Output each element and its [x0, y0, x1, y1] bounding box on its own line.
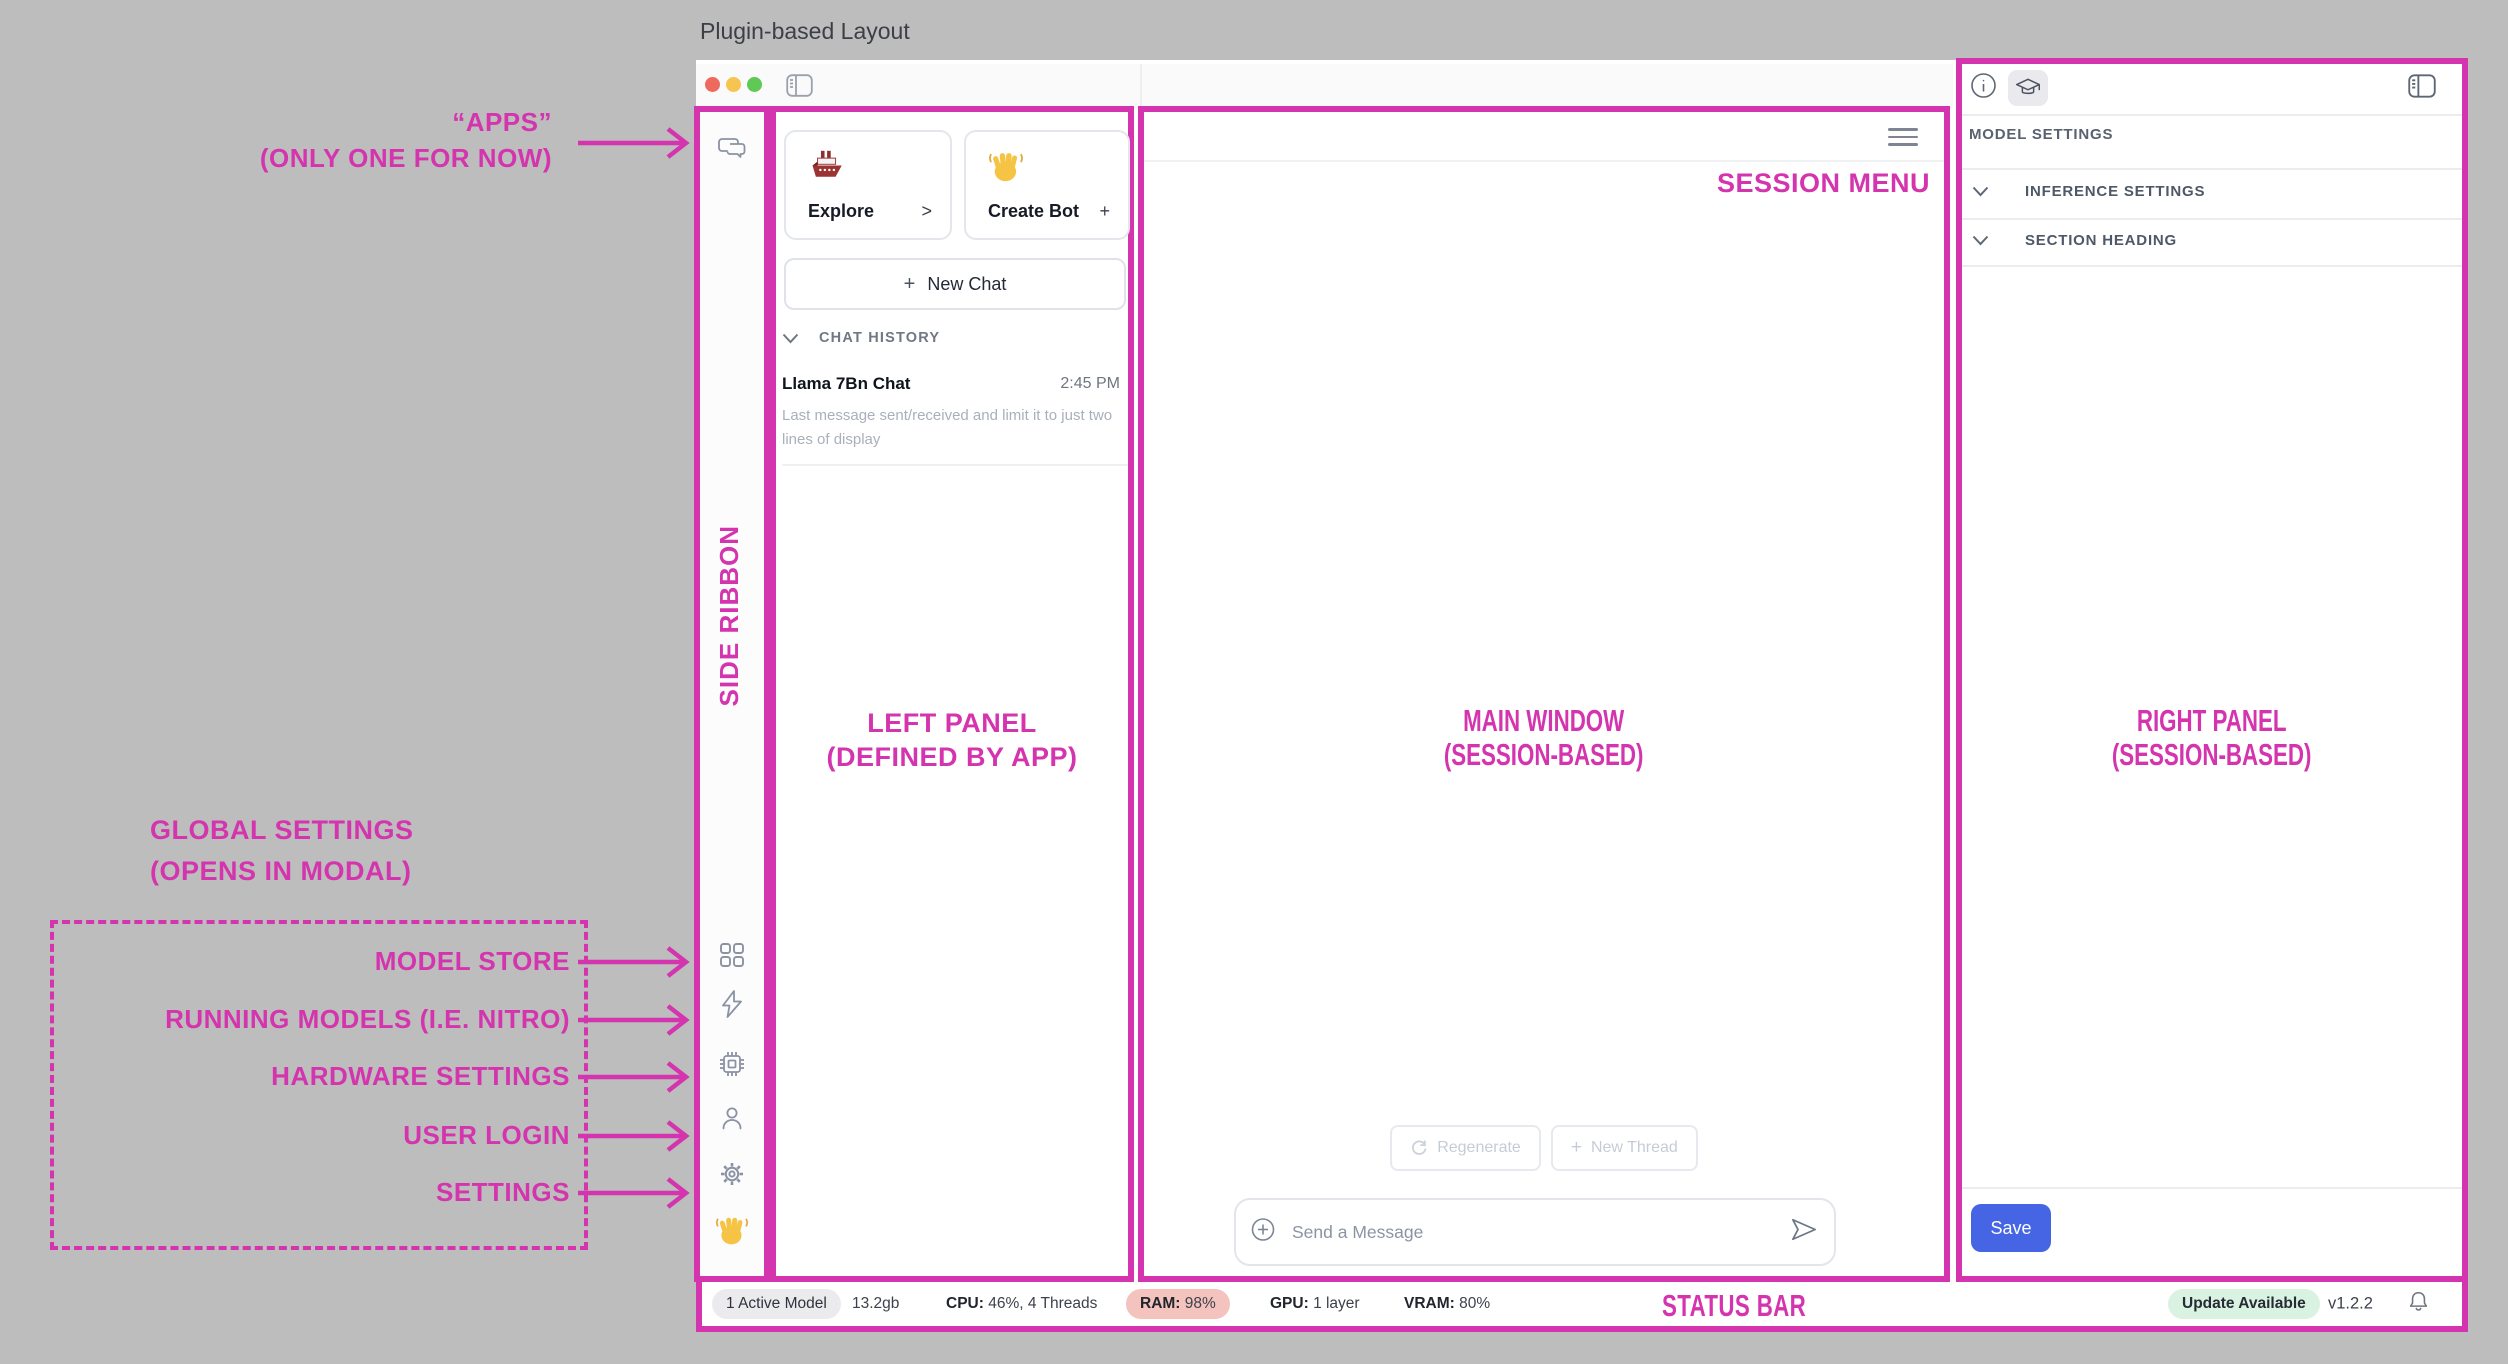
- session-menu-icon[interactable]: [1888, 128, 1918, 146]
- hardware-settings-icon[interactable]: [714, 1046, 750, 1082]
- chat-app-icon[interactable]: [714, 130, 750, 166]
- chevron-down-icon: [1972, 235, 1989, 246]
- left-panel-annotation: LEFT PANEL (DEFINED BY APP): [770, 706, 1134, 774]
- notification-bell-icon[interactable]: [2408, 1290, 2429, 1319]
- create-bot-card[interactable]: Create Bot +: [964, 130, 1130, 240]
- status-bar-annotation: STATUS BAR: [1662, 1288, 1806, 1324]
- plus-icon: +: [904, 273, 916, 296]
- model-settings-tab-active[interactable]: [2008, 70, 2048, 106]
- page-title: Plugin-based Layout: [700, 18, 910, 45]
- regenerate-button[interactable]: Regenerate: [1390, 1125, 1541, 1171]
- global-settings-annotation: GLOBAL SETTINGS (OPENS IN MODAL): [150, 810, 414, 892]
- chat-item-preview: Last message sent/received and limit it …: [782, 404, 1127, 452]
- status-bar: 1 Active Model 13.2gb CPU: 46%, 4 Thread…: [696, 1282, 2468, 1332]
- vram-stat: VRAM: 80%: [1404, 1295, 1490, 1313]
- divider: [1962, 1187, 2462, 1189]
- new-thread-button[interactable]: + New Thread: [1551, 1125, 1698, 1171]
- model-store-icon[interactable]: [714, 937, 750, 973]
- create-bot-card-label: Create Bot: [988, 201, 1079, 222]
- update-available-badge[interactable]: Update Available: [2168, 1289, 2320, 1319]
- model-store-arrow: [576, 944, 692, 980]
- apps-annotation: “APPS” (ONLY ONE FOR NOW): [260, 104, 552, 176]
- wave-emoji-icon: [988, 148, 1024, 189]
- divider: [1962, 168, 2462, 170]
- explore-card-label: Explore: [808, 201, 874, 222]
- window-titlebar: [696, 64, 1953, 108]
- traffic-light-minimize[interactable]: [726, 77, 741, 92]
- new-chat-label: New Chat: [927, 274, 1006, 295]
- left-panel: Explore > Create Bot: [770, 106, 1134, 1282]
- traffic-light-zoom[interactable]: [747, 77, 762, 92]
- attach-plus-icon[interactable]: [1250, 1217, 1276, 1248]
- send-icon[interactable]: [1790, 1217, 1818, 1248]
- message-input[interactable]: [1292, 1200, 1732, 1264]
- ram-stat-badge: RAM: 98%: [1126, 1289, 1230, 1319]
- regenerate-label: Regenerate: [1437, 1139, 1521, 1157]
- explore-card[interactable]: Explore >: [784, 130, 952, 240]
- right-panel: MODEL SETTINGS INFERENCE SETTINGS SECTIO…: [1956, 58, 2468, 1282]
- chevron-down-icon: [782, 333, 799, 344]
- model-store-annotation: MODEL STORE: [375, 946, 570, 977]
- right-panel-annotation: RIGHT PANEL(SESSION-BASED): [1956, 704, 2468, 773]
- running-models-annotation: RUNNING MODELS (I.E. NITRO): [165, 1004, 570, 1035]
- main-window-annotation: MAIN WINDOW(SESSION-BASED): [1138, 704, 1950, 773]
- running-models-icon[interactable]: [714, 986, 750, 1022]
- plus-icon: +: [1571, 1137, 1582, 1159]
- memory-size-text: 13.2gb: [852, 1295, 899, 1313]
- user-login-annotation: USER LOGIN: [403, 1120, 570, 1151]
- main-topbar-divider: [1144, 160, 1944, 162]
- inference-settings-label: INFERENCE SETTINGS: [2025, 183, 2205, 200]
- explore-card-chevron: >: [921, 201, 932, 222]
- user-login-arrow: [576, 1118, 692, 1154]
- list-divider: [782, 464, 1128, 466]
- apps-arrow: [576, 125, 692, 161]
- info-icon[interactable]: [1970, 72, 1997, 104]
- right-panel-topbar: [1962, 64, 2462, 114]
- refresh-icon: [1410, 1139, 1428, 1157]
- new-chat-button[interactable]: + New Chat: [784, 258, 1126, 310]
- divider: [1962, 114, 2462, 116]
- create-bot-card-plus: +: [1099, 201, 1110, 222]
- main-window: Regenerate + New Thread: [1138, 106, 1950, 1282]
- chat-item-title: Llama 7Bn Chat: [782, 374, 910, 394]
- right-sidebar-toggle-icon[interactable]: [2408, 74, 2436, 103]
- divider: [1962, 218, 2462, 220]
- version-text: v1.2.2: [2328, 1295, 2373, 1314]
- section-heading-label: SECTION HEADING: [2025, 232, 2177, 249]
- chat-history-label: CHAT HISTORY: [819, 330, 940, 346]
- left-sidebar-toggle-icon[interactable]: [786, 74, 813, 102]
- wave-hand-icon[interactable]: [714, 1212, 750, 1248]
- screenshot-root: Plugin-based Layout: [0, 0, 2508, 1364]
- titlebar-divider: [1140, 64, 1142, 108]
- user-login-icon[interactable]: [714, 1100, 750, 1136]
- ship-emoji-icon: [808, 148, 844, 189]
- hardware-settings-annotation: HARDWARE SETTINGS: [271, 1061, 570, 1092]
- active-model-badge: 1 Active Model: [712, 1289, 841, 1319]
- settings-annotation: SETTINGS: [436, 1177, 570, 1208]
- divider: [1962, 265, 2462, 267]
- settings-gear-icon[interactable]: [714, 1156, 750, 1192]
- chat-history-header[interactable]: CHAT HISTORY: [782, 330, 940, 346]
- chat-item-time: 2:45 PM: [1060, 375, 1120, 393]
- settings-arrow: [576, 1175, 692, 1211]
- traffic-light-close[interactable]: [705, 77, 720, 92]
- session-menu-annotation: SESSION MENU: [1717, 168, 1930, 199]
- section-heading-section[interactable]: SECTION HEADING: [1972, 232, 2177, 249]
- gpu-stat: GPU: 1 layer: [1270, 1295, 1360, 1313]
- chevron-down-icon: [1972, 186, 1989, 197]
- message-input-container: [1234, 1198, 1836, 1266]
- save-button[interactable]: Save: [1971, 1204, 2051, 1252]
- model-settings-heading: MODEL SETTINGS: [1969, 126, 2113, 143]
- hardware-settings-arrow: [576, 1059, 692, 1095]
- graduation-cap-icon: [2015, 76, 2041, 100]
- running-models-arrow: [576, 1002, 692, 1038]
- cpu-stat: CPU: 46%, 4 Threads: [946, 1295, 1097, 1313]
- inference-settings-section[interactable]: INFERENCE SETTINGS: [1972, 183, 2205, 200]
- side-ribbon-annotation: SIDE RIBBON: [702, 502, 756, 730]
- new-thread-label: New Thread: [1591, 1139, 1678, 1157]
